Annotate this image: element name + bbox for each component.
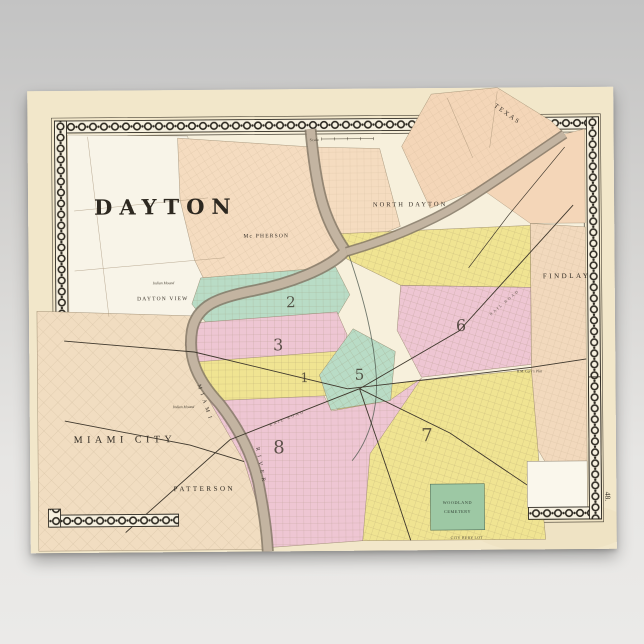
corner-inset xyxy=(527,461,587,507)
scene-background: WOODLAND CEMETERY CITY BURY LOT Scale DA… xyxy=(0,0,644,644)
cemetery-label-1: WOODLAND xyxy=(443,500,473,505)
city-bury-lot-label: CITY BURY LOT xyxy=(451,536,484,540)
ward-8-number: 8 xyxy=(273,437,285,458)
label-indian-mound-2: Indian Mound xyxy=(172,405,195,409)
label-north-dayton: NORTH DAYTON xyxy=(373,201,447,209)
page-number: 48. xyxy=(603,492,612,502)
scale-label: Scale xyxy=(310,138,320,142)
ward-3-number: 3 xyxy=(273,335,283,354)
ward-2-number: 2 xyxy=(286,293,296,311)
label-dayton-view: DAYTON VIEW xyxy=(137,296,188,302)
dayton-map: WOODLAND CEMETERY CITY BURY LOT Scale DA… xyxy=(27,87,617,554)
label-mcpherson: Mc PHERSON xyxy=(243,233,289,239)
ward-1-number: 1 xyxy=(300,371,308,386)
label-indian-mound-1: Indian Mound xyxy=(152,281,175,285)
label-carrs-plat: R.M. Carr's Plat xyxy=(516,369,543,373)
map-poster: WOODLAND CEMETERY CITY BURY LOT Scale DA… xyxy=(27,87,617,554)
cemetery-label-2: CEMETERY xyxy=(444,509,471,514)
ward-7-number: 7 xyxy=(421,425,433,446)
label-findlay: FINDLAY xyxy=(543,272,591,280)
map-title: DAYTON xyxy=(94,194,238,220)
woodland-cemetery: WOODLAND CEMETERY xyxy=(430,484,484,530)
ward-5-number: 5 xyxy=(355,366,365,384)
label-miami-city: MIAMI CITY xyxy=(74,434,177,446)
ward-6-number: 6 xyxy=(456,316,466,335)
label-patterson: PATTERSON xyxy=(174,485,236,493)
